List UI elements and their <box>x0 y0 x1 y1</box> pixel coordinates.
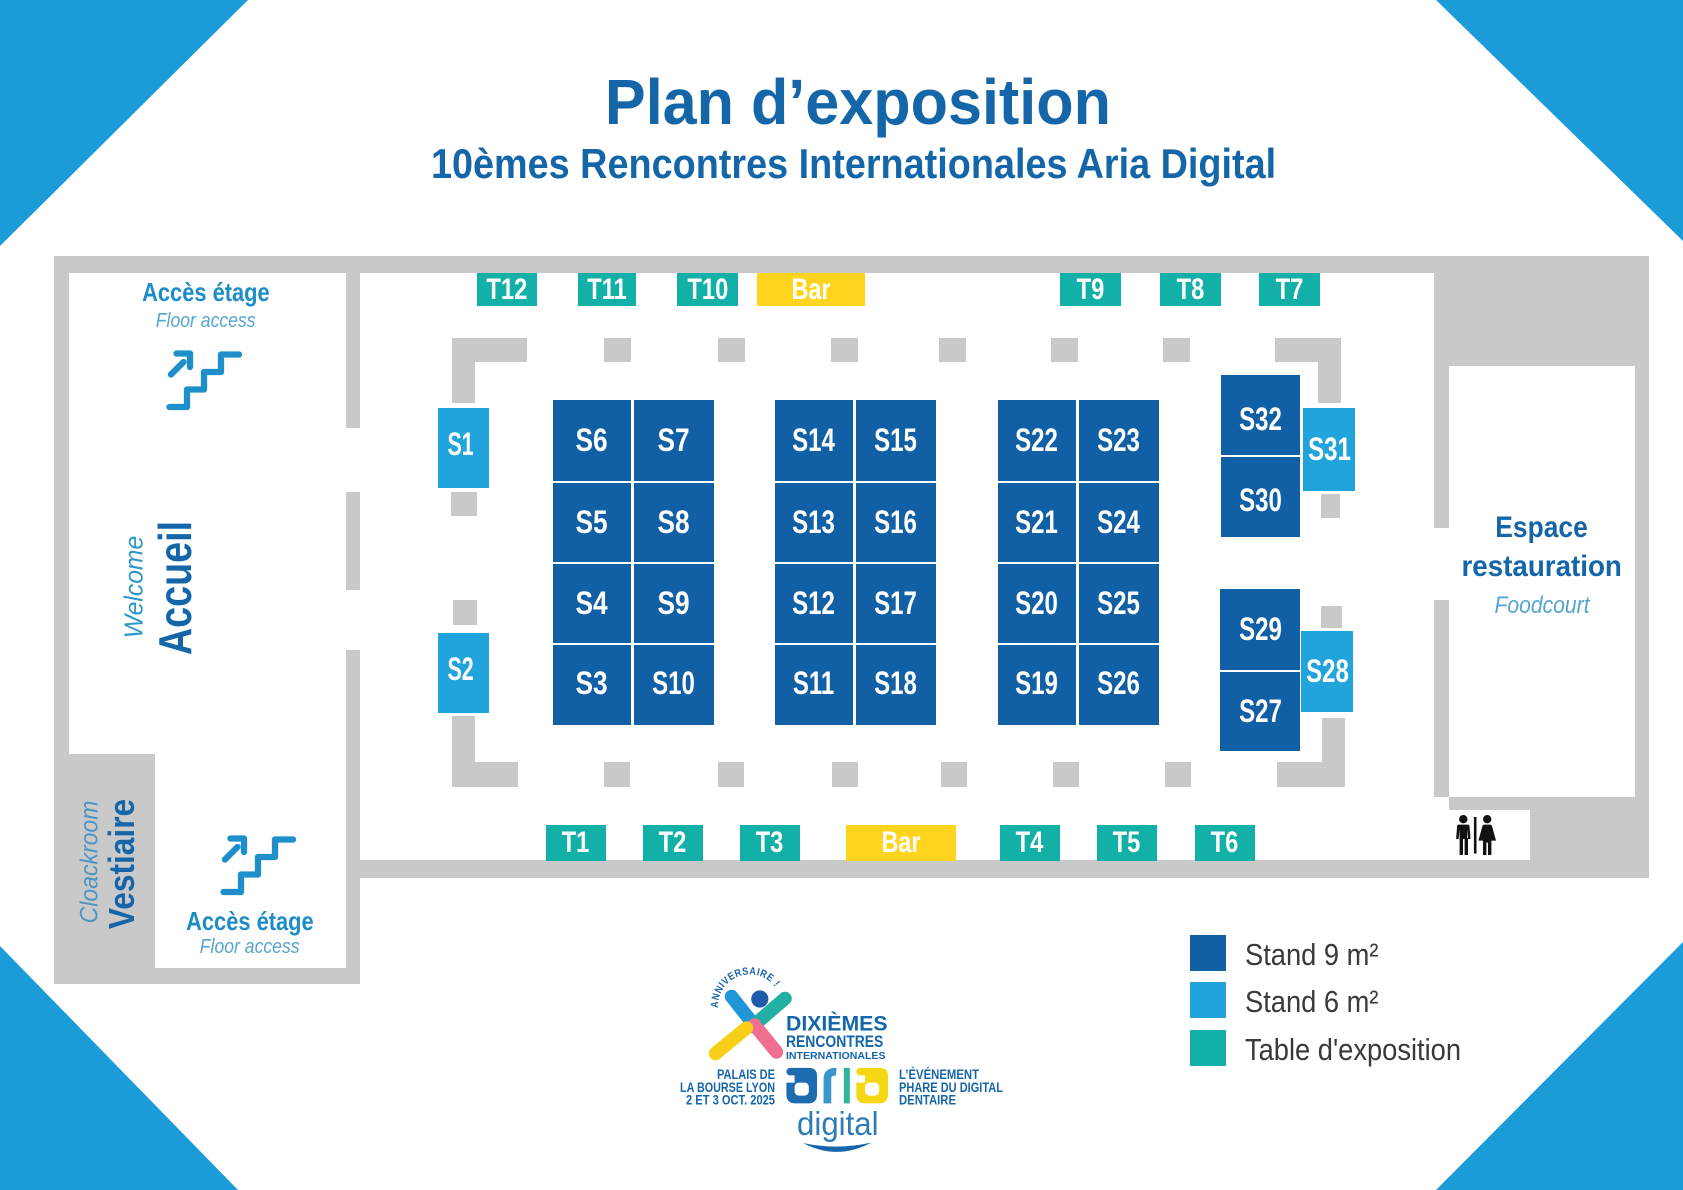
svg-text:DIXIÈMES: DIXIÈMES <box>786 1010 888 1035</box>
svg-text:INTERNATIONALES: INTERNATIONALES <box>786 1051 886 1062</box>
svg-text:RENCONTRES: RENCONTRES <box>786 1033 883 1051</box>
svg-text:digital: digital <box>797 1105 879 1142</box>
svg-text:DENTAIRE: DENTAIRE <box>899 1093 956 1108</box>
svg-text:2 ET 3 OCT. 2025: 2 ET 3 OCT. 2025 <box>686 1093 775 1108</box>
